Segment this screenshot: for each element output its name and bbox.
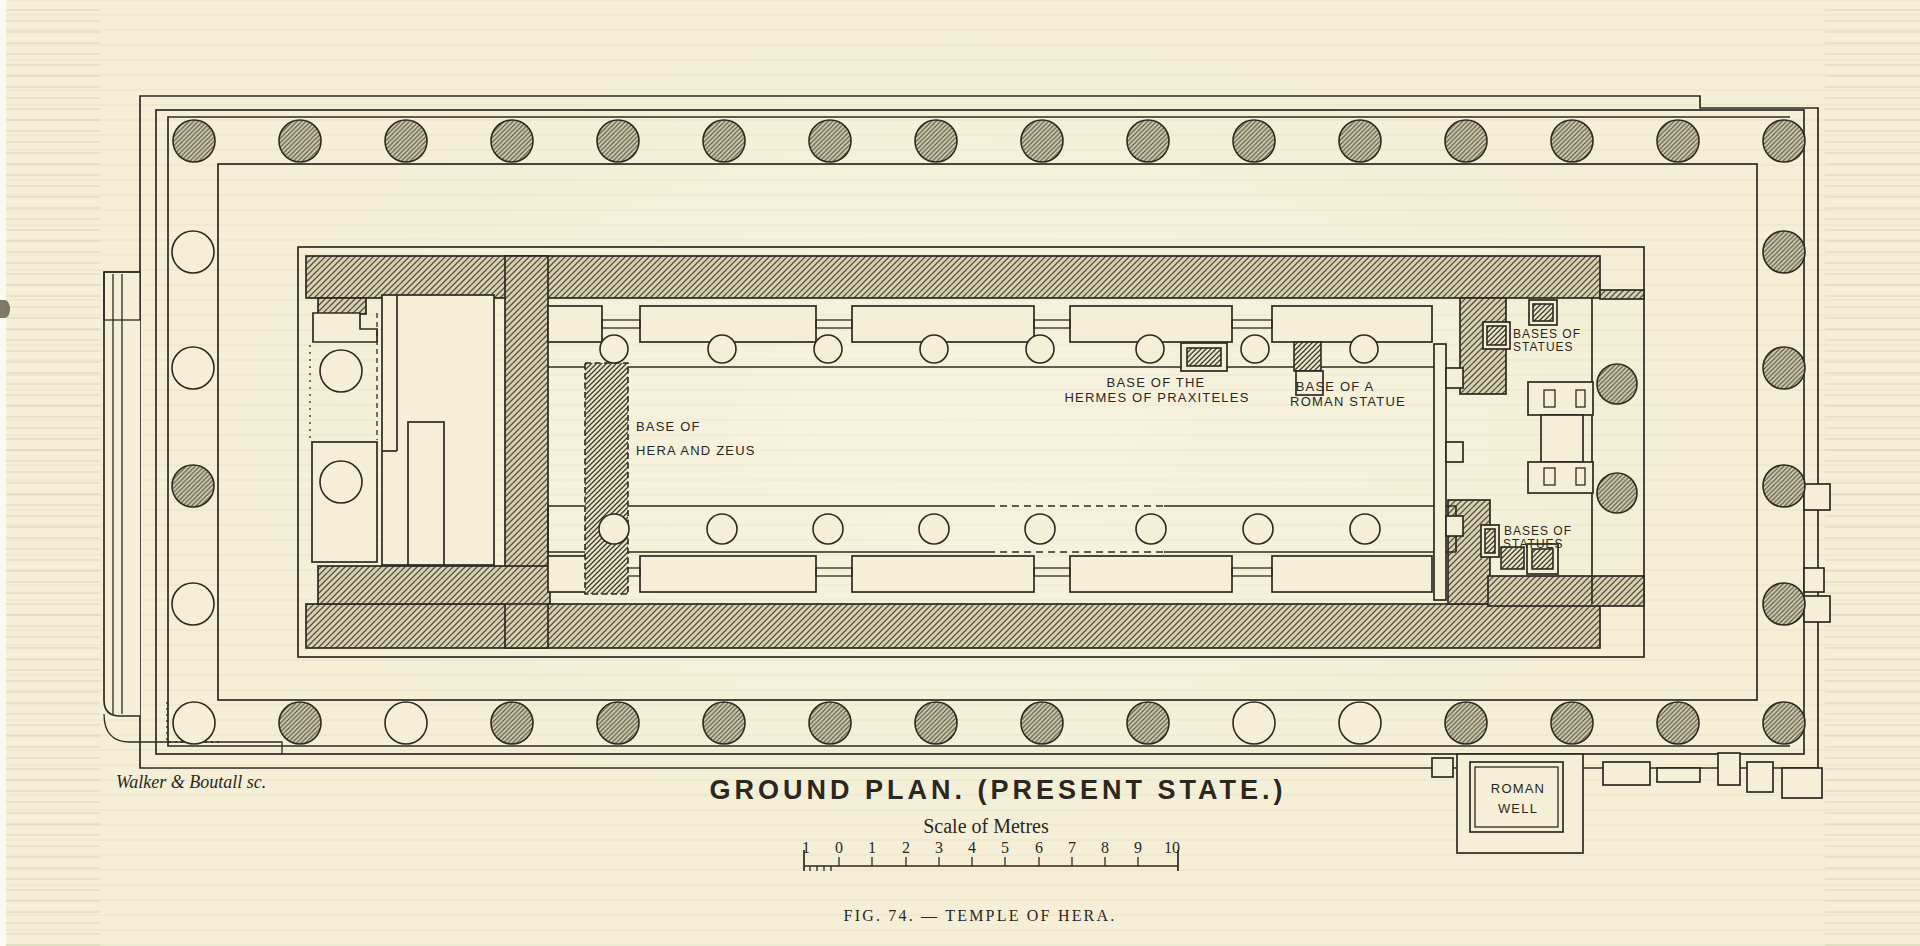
cella-south-wall xyxy=(306,604,1600,648)
column-base xyxy=(600,335,628,363)
scale-number: 9 xyxy=(1134,839,1142,856)
column-base xyxy=(707,514,737,544)
scale-number: 6 xyxy=(1035,839,1043,856)
scale-bar: 1 0 1 2 3 4 5 6 7 8 9 10 xyxy=(802,839,1180,871)
column-standing xyxy=(1127,702,1169,744)
column-standing xyxy=(1763,465,1805,507)
column-base xyxy=(172,231,214,273)
column-base xyxy=(813,514,843,544)
column-standing xyxy=(1763,583,1805,625)
figure-title: GROUND PLAN. (PRESENT STATE.) xyxy=(709,775,1286,805)
column-base xyxy=(1350,335,1378,363)
column-base xyxy=(708,335,736,363)
column-base xyxy=(1025,514,1055,544)
column-standing xyxy=(1551,120,1593,162)
column-base xyxy=(320,350,362,392)
column-base xyxy=(320,461,362,503)
column-standing xyxy=(703,120,745,162)
column-standing xyxy=(385,120,427,162)
column-base xyxy=(1136,335,1164,363)
column-standing xyxy=(1763,347,1805,389)
scale-number: 7 xyxy=(1068,839,1076,856)
column-base xyxy=(1026,335,1054,363)
east-exterior-block xyxy=(1804,596,1830,622)
column-standing xyxy=(915,120,957,162)
column-standing xyxy=(809,702,851,744)
scale-number: 10 xyxy=(1164,839,1180,856)
column-standing xyxy=(279,702,321,744)
column-standing xyxy=(1021,120,1063,162)
south-exterior-block xyxy=(1747,762,1773,792)
column-standing xyxy=(1597,473,1637,513)
scale-number: 5 xyxy=(1001,839,1009,856)
column-standing xyxy=(915,702,957,744)
column-standing xyxy=(1551,702,1593,744)
door-sill-combs xyxy=(1528,382,1593,493)
south-screen-walls xyxy=(548,556,1432,592)
label-base-of-roman-2: ROMAN STATUE xyxy=(1290,394,1406,409)
label-bases-ne-1: BASES OF xyxy=(1513,327,1581,341)
column-standing xyxy=(1021,702,1063,744)
column-standing xyxy=(491,702,533,744)
column-base xyxy=(919,514,949,544)
south-exterior-block xyxy=(1603,762,1650,785)
south-exterior-block xyxy=(1657,768,1700,782)
label-bases-se-1: BASES OF xyxy=(1504,524,1572,538)
scale-number: 8 xyxy=(1101,839,1109,856)
column-base xyxy=(1136,514,1166,544)
northwest-anta-stub xyxy=(318,298,366,314)
south-east-corner-step xyxy=(1782,768,1822,798)
column-standing xyxy=(1657,120,1699,162)
label-base-of-hera-2: HERA AND ZEUS xyxy=(636,443,756,458)
column-standing xyxy=(1763,120,1805,162)
column-standing xyxy=(1339,120,1381,162)
column-standing xyxy=(491,120,533,162)
column-standing xyxy=(597,120,639,162)
column-standing xyxy=(172,465,214,507)
scale-number: 1 xyxy=(868,839,876,856)
column-base xyxy=(599,514,629,544)
column-standing xyxy=(1233,120,1275,162)
column-standing xyxy=(1445,702,1487,744)
scale-number: 4 xyxy=(968,839,976,856)
scale-number: 1 xyxy=(802,839,810,856)
southwest-wall-thickening xyxy=(318,566,550,604)
cella-north-wall xyxy=(306,256,1600,298)
opisthodomos xyxy=(310,295,494,565)
column-standing xyxy=(809,120,851,162)
column-standing xyxy=(703,702,745,744)
roman-well: ROMAN WELL xyxy=(1457,754,1583,853)
north-screen-walls xyxy=(548,306,1432,342)
roman-well-label-1: ROMAN xyxy=(1491,781,1545,796)
column-base xyxy=(173,702,215,744)
label-bases-se-2: STATUES xyxy=(1503,537,1564,551)
engraver-credit: Walker & Boutall sc. xyxy=(116,772,266,792)
column-base xyxy=(1350,514,1380,544)
label-bases-ne-2: STATUES xyxy=(1513,340,1574,354)
column-standing xyxy=(279,120,321,162)
roman-well-label-2: WELL xyxy=(1498,801,1538,816)
scale-number: 0 xyxy=(835,839,843,856)
west-room-step xyxy=(408,422,444,565)
southeast-wall-apron xyxy=(1488,576,1644,606)
scale-number: 3 xyxy=(935,839,943,856)
column-base xyxy=(385,702,427,744)
column-standing xyxy=(1597,364,1637,404)
column-standing xyxy=(1445,120,1487,162)
figure-caption: FIG. 74. — TEMPLE OF HERA. xyxy=(844,907,1117,924)
column-base xyxy=(1241,335,1269,363)
column-base xyxy=(172,583,214,625)
south-colonnade-band xyxy=(548,506,1456,552)
cella-north-wall-east-end xyxy=(1600,290,1644,299)
column-base xyxy=(172,347,214,389)
figure-captions: Walker & Boutall sc. GROUND PLAN. (PRESE… xyxy=(116,772,1287,924)
hermes-base xyxy=(1181,343,1227,371)
south-exterior-block xyxy=(1718,753,1740,785)
scale-number: 2 xyxy=(902,839,910,856)
column-base xyxy=(1243,514,1273,544)
label-base-of-roman-1: BASE OF A xyxy=(1296,379,1375,394)
scale-label: Scale of Metres xyxy=(923,815,1049,837)
column-standing xyxy=(1127,120,1169,162)
temple-of-hera-ground-plan: ROMAN WELL BASE OF HERA AND ZEUS BASE OF… xyxy=(0,0,1920,946)
label-base-of-hermes-2: HERMES OF PRAXITELES xyxy=(1064,390,1249,405)
east-exterior-block xyxy=(1804,484,1830,510)
label-base-of-hera-1: BASE OF xyxy=(636,419,701,434)
south-exterior-block xyxy=(1432,758,1453,777)
column-standing xyxy=(1763,231,1805,273)
column-base xyxy=(1339,702,1381,744)
column-base xyxy=(920,335,948,363)
column-standing xyxy=(1657,702,1699,744)
east-exterior-block xyxy=(1804,568,1824,592)
west-anta-outline xyxy=(313,313,377,342)
column-standing xyxy=(173,120,215,162)
column-standing xyxy=(1763,702,1805,744)
column-base xyxy=(1233,702,1275,744)
hera-zeus-base xyxy=(585,363,628,594)
column-standing xyxy=(597,702,639,744)
column-base xyxy=(814,335,842,363)
label-base-of-hermes-1: BASE OF THE xyxy=(1107,375,1206,390)
